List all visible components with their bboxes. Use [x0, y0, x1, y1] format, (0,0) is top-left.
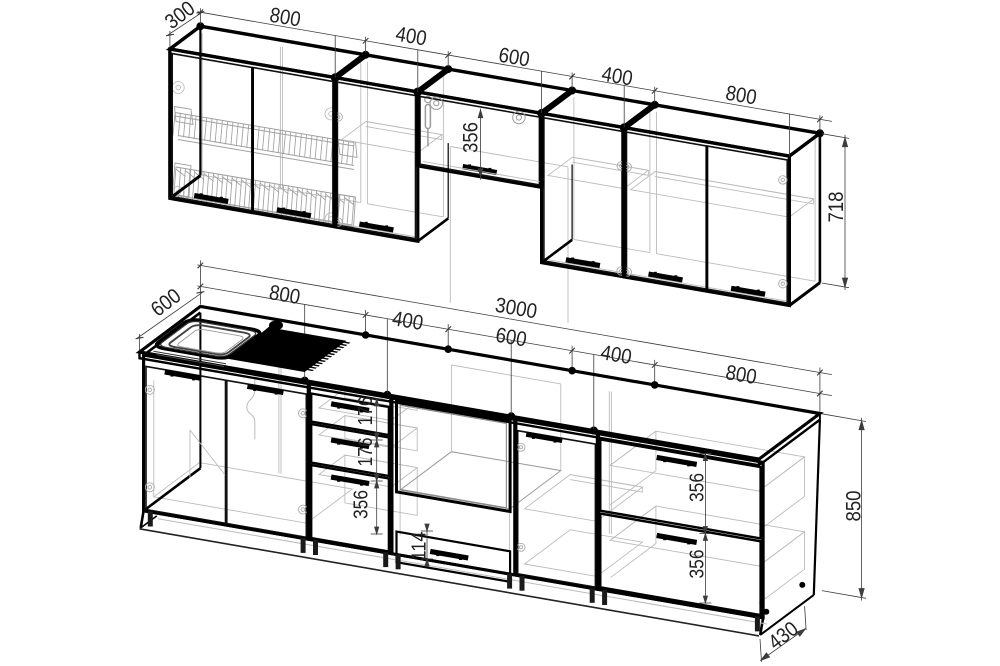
svg-text:356: 356	[460, 122, 483, 153]
svg-text:718: 718	[825, 192, 848, 223]
svg-text:176: 176	[355, 438, 377, 467]
svg-text:850: 850	[843, 491, 866, 522]
svg-text:176: 176	[355, 397, 377, 426]
svg-text:356: 356	[686, 473, 708, 502]
svg-text:356: 356	[686, 550, 708, 579]
svg-text:114: 114	[409, 532, 431, 561]
svg-text:356: 356	[351, 490, 373, 519]
